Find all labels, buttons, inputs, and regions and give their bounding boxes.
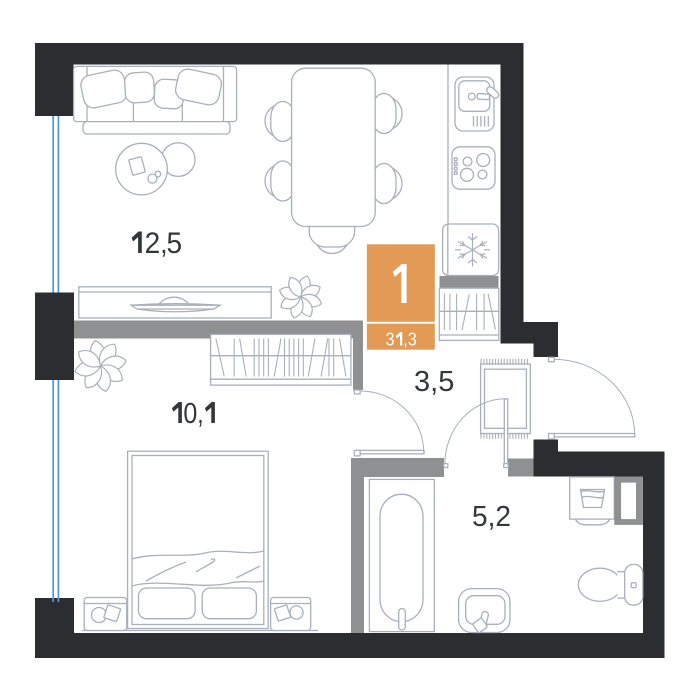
svg-text:3,5: 3,5 (414, 366, 454, 398)
svg-text:5,2: 5,2 (472, 501, 511, 533)
svg-text:3: 3 (408, 329, 417, 350)
svg-text:,: , (197, 398, 203, 430)
svg-text:0: 0 (183, 398, 197, 430)
svg-text:2: 2 (145, 227, 161, 260)
svg-text:5: 5 (167, 227, 183, 260)
svg-text:3: 3 (386, 329, 395, 350)
